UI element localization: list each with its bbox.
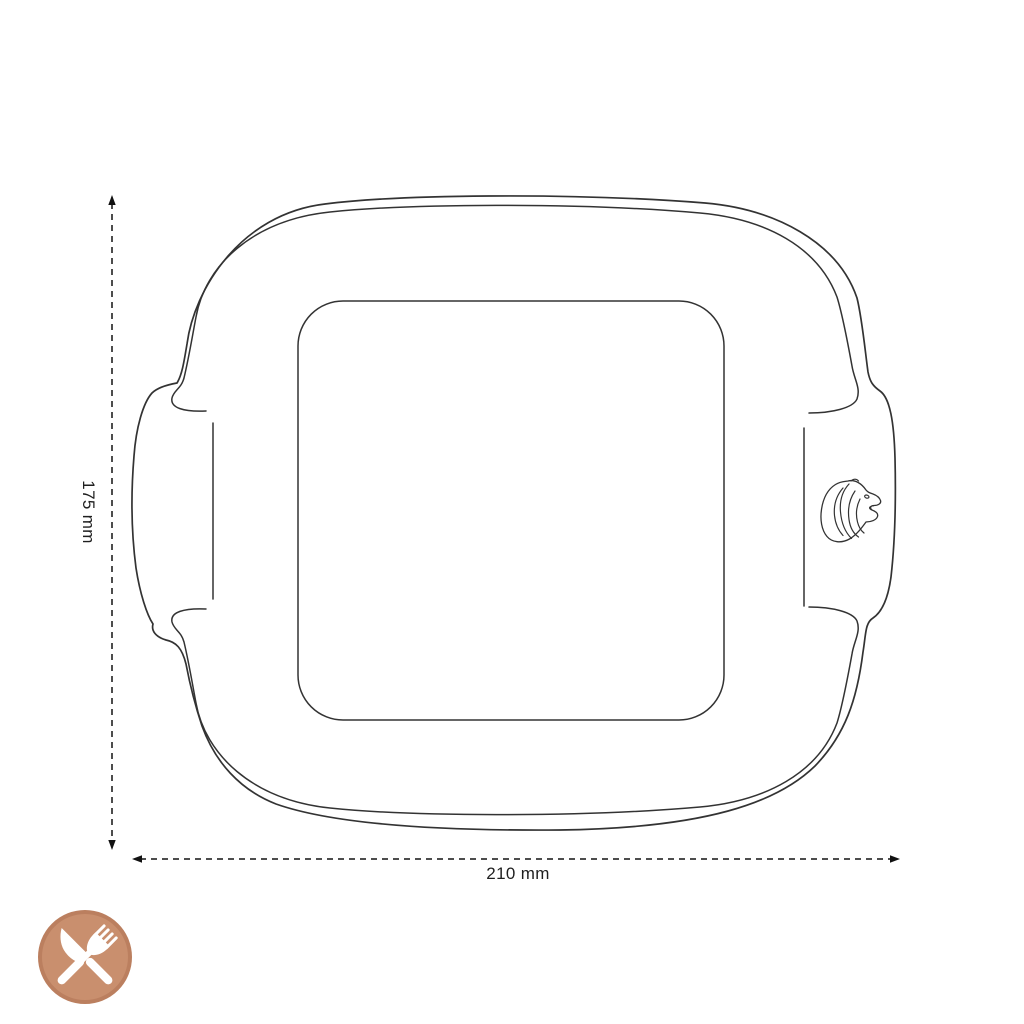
arrow-left-icon bbox=[132, 855, 142, 862]
arrow-up-icon bbox=[108, 195, 115, 205]
dish-outer-outline bbox=[132, 196, 895, 830]
lion-mane-strand-1 bbox=[840, 484, 851, 539]
lion-mane-strand-4 bbox=[856, 499, 864, 533]
lion-head-icon bbox=[821, 479, 881, 542]
dish-inner-base bbox=[298, 301, 724, 720]
width-dimension bbox=[132, 855, 900, 862]
dish-drawing bbox=[132, 196, 895, 830]
lion-eye bbox=[864, 494, 869, 498]
width-dimension-label: 210 mm bbox=[486, 864, 549, 884]
lion-head-outline bbox=[821, 481, 881, 542]
dish-rim-inner-bottom-line bbox=[172, 607, 858, 815]
arrow-down-icon bbox=[108, 840, 115, 850]
product-dimension-diagram: 175 mm 210 mm bbox=[0, 0, 1024, 1024]
arrow-right-icon bbox=[890, 855, 900, 862]
height-dimension bbox=[108, 195, 115, 850]
dish-rim-inner-top-line bbox=[172, 205, 858, 413]
height-dimension-label: 175 mm bbox=[78, 480, 98, 543]
brand-badge bbox=[40, 912, 130, 1002]
